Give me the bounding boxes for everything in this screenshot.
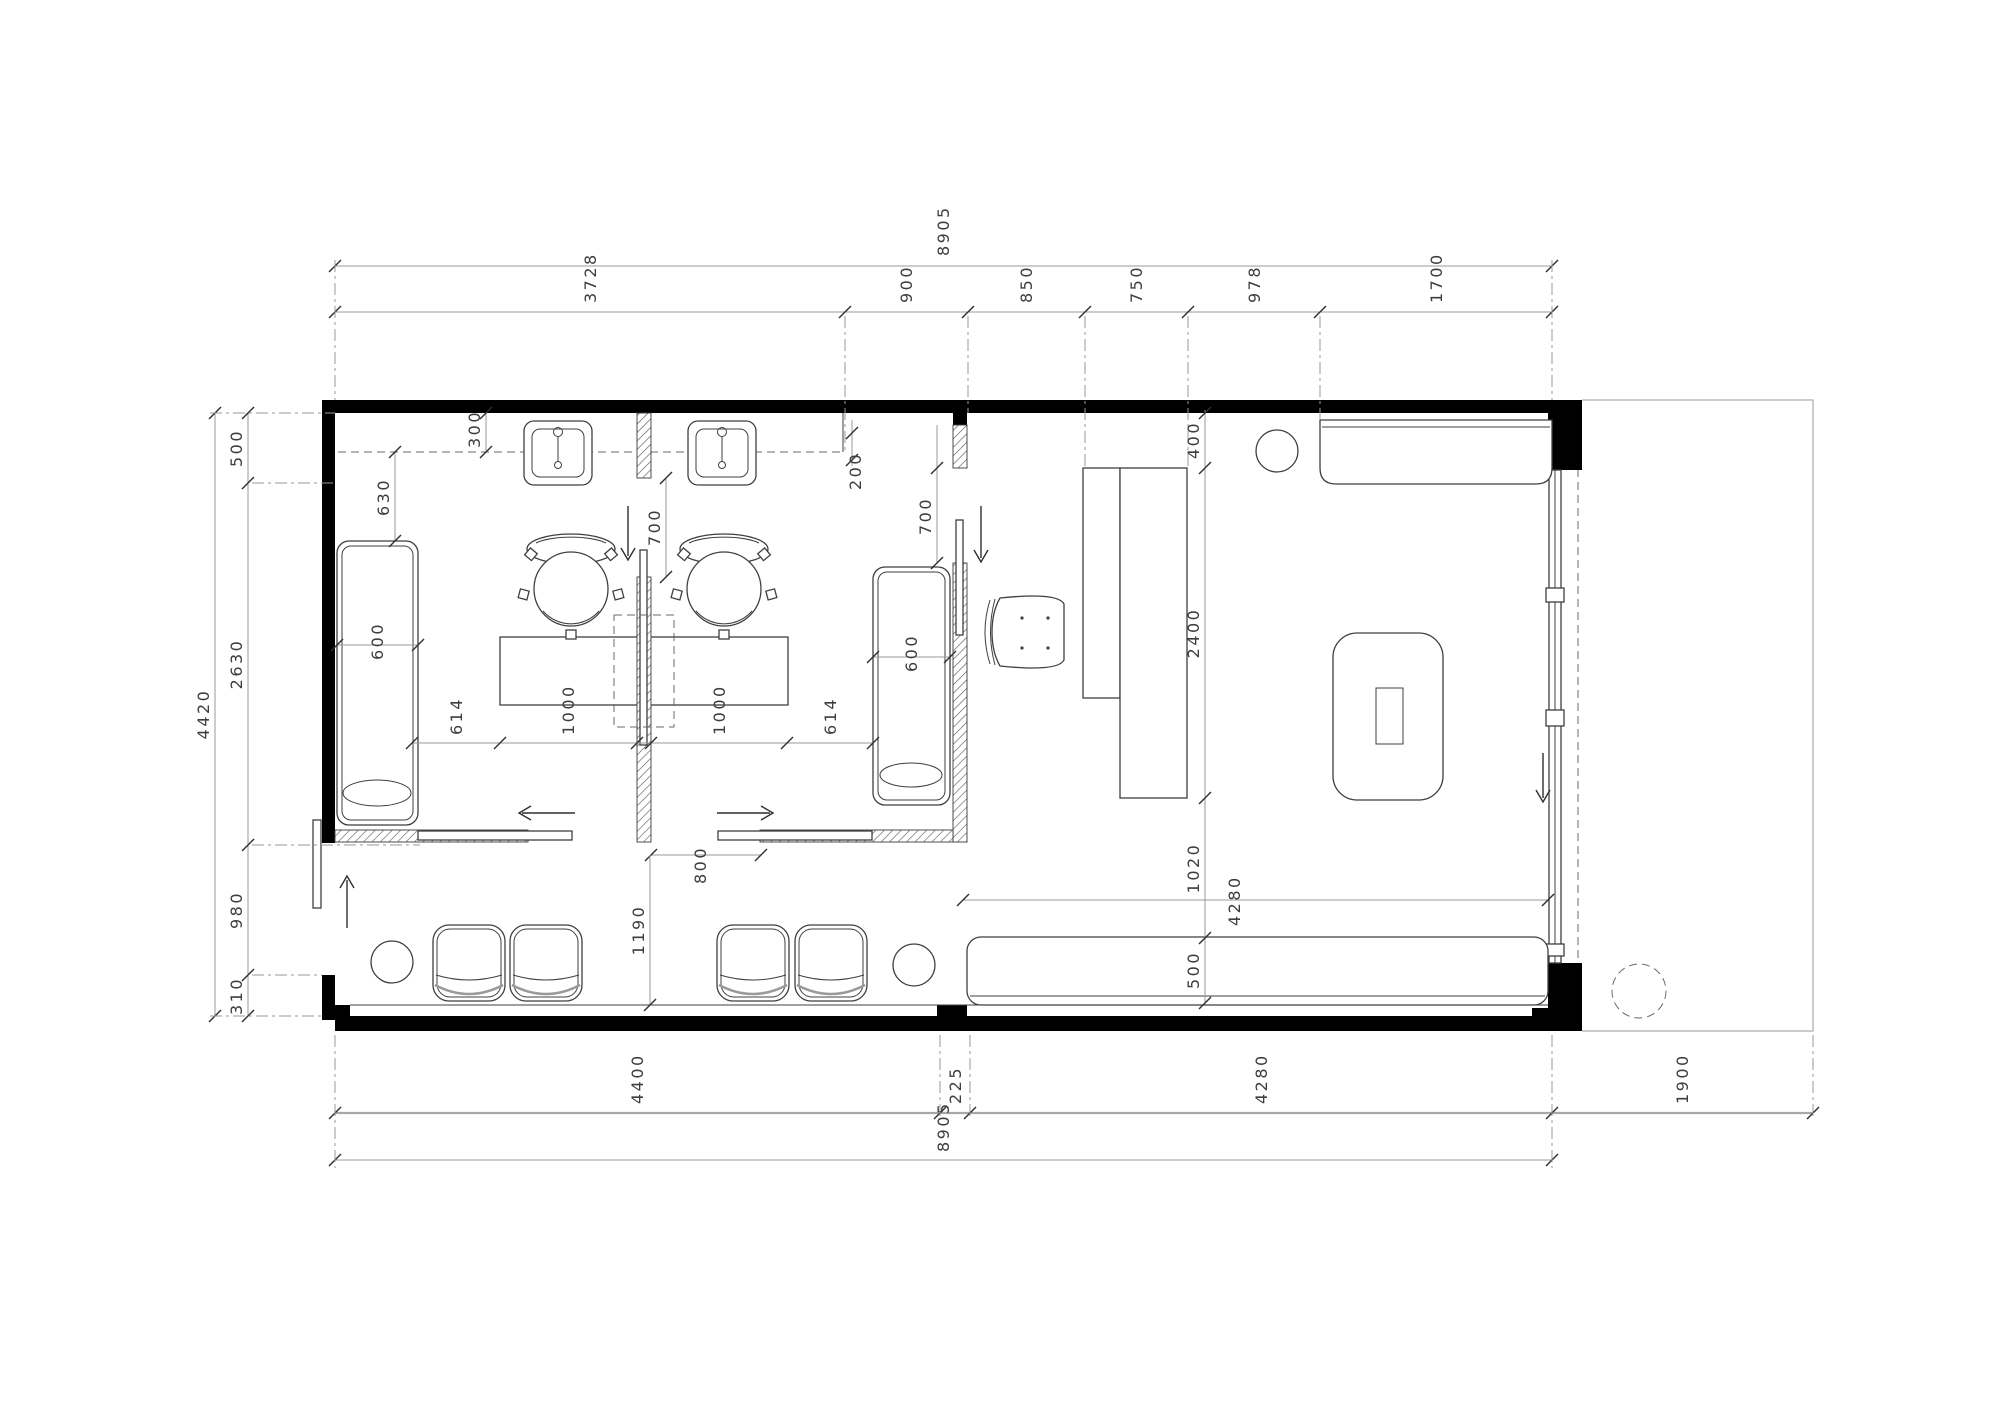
dim-label: 500 [1184,951,1203,989]
partition-2 [953,425,967,842]
dim-label: 800 [691,846,710,884]
pocket-door-leaf-1 [640,550,647,745]
dim-label: 310 [227,977,246,1015]
dim-label: 225 [946,1066,965,1104]
office-chair [985,596,1064,668]
dim-bottom-chain: 4400 225 4280 1900 8905 [329,1035,1819,1168]
waiting-chair [717,925,789,1001]
window-right [1546,470,1564,963]
dim-label: 700 [645,508,664,546]
dim-label: 400 [1184,421,1203,459]
dim-label: 300 [465,410,484,448]
window-door-arrow [1536,753,1550,802]
exterior-zone-outline [1582,400,1813,1031]
waiting-area [371,925,935,1001]
dim-label: 978 [1245,265,1264,303]
dim-label: 4280 [1252,1053,1271,1104]
reception-desk-return [1083,468,1120,698]
bottom-wall [335,1016,1582,1031]
dim-label: 614 [821,697,840,735]
retail-shelf-bench [1320,420,1552,484]
waiting-chair [510,925,582,1001]
dim-label: 4280 [1225,875,1244,926]
dim-label: 614 [447,697,466,735]
dim-label: 900 [897,265,916,303]
styling-chair-1 [518,534,624,639]
dim-label: 2400 [1184,608,1203,659]
dim-label: 4400 [628,1053,647,1104]
partition-1-upper [637,413,651,478]
window-mullion [1546,588,1564,602]
sliding-door-panel-1 [418,831,572,840]
lounger-2 [873,567,950,805]
dim-label: 700 [916,497,935,535]
partition-1 [637,413,651,842]
display-table [1333,633,1443,800]
exterior-zone [1578,400,1813,1031]
bottom-left-corner-step [322,1005,350,1017]
lounger-1 [337,541,418,825]
dim-label: 1020 [1184,843,1203,894]
dim-label: 750 [1127,265,1146,303]
dim-label: 8905 [934,1101,953,1152]
dim-label: 3728 [581,252,600,303]
window-mullion [1546,944,1564,956]
waiting-chair [795,925,867,1001]
treatment-room-2 [671,421,950,805]
floor-plan-canvas: 8905 3728 900 850 750 978 1700 4420 500 … [0,0,2000,1413]
window-mullion [1546,710,1564,726]
dim-label: 1190 [629,905,648,956]
floor-plan-page: 8905 3728 900 850 750 978 1700 4420 500 … [0,0,2000,1413]
dim-label: 200 [846,452,865,490]
dim-label: 1000 [559,684,578,735]
dim-label: 500 [227,429,246,467]
dim-label: 600 [902,634,921,672]
bottom-wall-pier [937,1005,967,1017]
pocket-door-arrow-1 [621,506,635,560]
dim-label: 4420 [194,689,213,740]
side-table [893,944,935,986]
side-table [371,941,413,983]
reception-area [967,420,1552,1005]
dim-label: 2630 [227,639,246,690]
top-right-corner-column [1548,400,1582,470]
dim-label: 1000 [710,684,729,735]
entrance-door-leaf [313,820,321,908]
dim-label: 600 [368,622,387,660]
entry-arrow [340,876,354,928]
dashed-circle-marker [1612,964,1666,1018]
door-slide-arrow-left [519,806,575,820]
dim-label: 630 [374,478,393,516]
pocket-door-leaf-2 [956,520,963,635]
sink-2 [688,421,756,485]
sink-1 [524,421,592,485]
sliding-door-panel-2 [718,831,872,840]
partition-2-upper [953,425,967,468]
reception-desk [1120,468,1187,798]
dim-label: 1700 [1427,252,1446,303]
door-slide-arrow-right [717,806,773,820]
dim-label: 850 [1017,265,1036,303]
seating-bench [967,937,1548,1005]
top-wall [322,400,1582,413]
dim-label: 980 [227,891,246,929]
waiting-chair [433,925,505,1001]
dim-label: 1900 [1673,1053,1692,1104]
partition-2-head [953,413,967,425]
left-wall [322,400,335,843]
stool [1256,430,1298,472]
dim-label: 8905 [934,205,953,256]
styling-chair-2 [671,534,777,639]
pocket-door-arrow-2 [974,506,988,562]
